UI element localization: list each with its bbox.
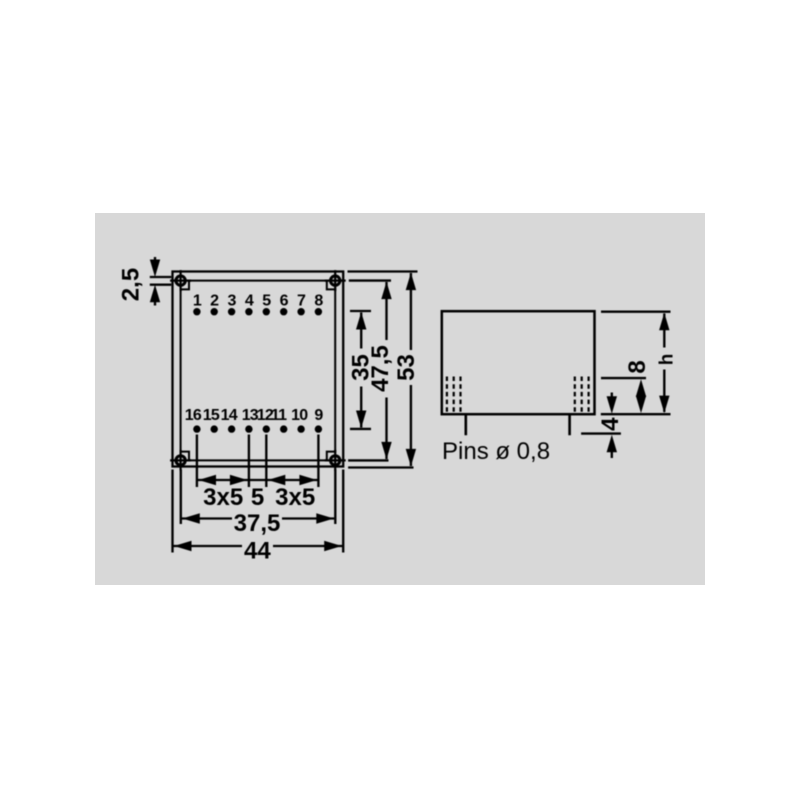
svg-text:10: 10 (291, 407, 308, 424)
svg-text:5: 5 (251, 484, 264, 511)
svg-text:8: 8 (624, 360, 651, 373)
svg-text:15: 15 (203, 407, 220, 424)
svg-text:Pins ø 0,8: Pins ø 0,8 (442, 438, 550, 465)
svg-text:3x5: 3x5 (203, 484, 243, 511)
svg-text:2: 2 (210, 293, 219, 310)
svg-text:14: 14 (221, 407, 238, 424)
svg-text:3x5: 3x5 (275, 484, 315, 511)
svg-text:2,5: 2,5 (118, 268, 145, 301)
svg-text:11: 11 (271, 407, 287, 424)
svg-text:47,5: 47,5 (367, 345, 394, 392)
svg-text:4: 4 (245, 293, 254, 310)
svg-text:16: 16 (185, 407, 202, 424)
svg-text:h: h (657, 354, 678, 366)
svg-text:53: 53 (393, 354, 420, 381)
svg-text:7: 7 (297, 293, 306, 310)
svg-text:8: 8 (314, 293, 323, 310)
svg-text:44: 44 (244, 538, 271, 565)
svg-text:37,5: 37,5 (234, 510, 281, 537)
svg-text:1: 1 (193, 293, 202, 310)
svg-text:6: 6 (280, 293, 289, 310)
svg-text:9: 9 (314, 407, 323, 424)
svg-text:5: 5 (262, 293, 271, 310)
svg-text:4: 4 (597, 417, 624, 431)
svg-text:3: 3 (228, 293, 237, 310)
